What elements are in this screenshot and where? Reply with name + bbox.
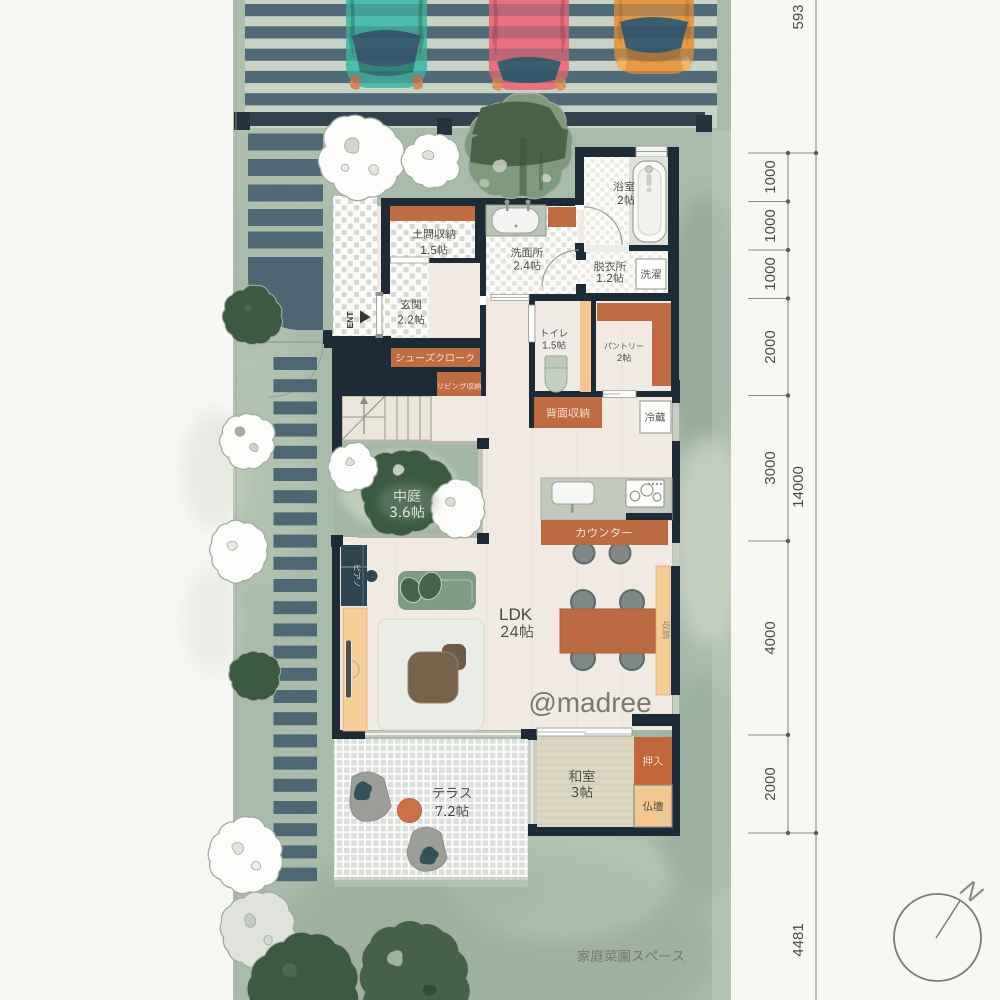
svg-text:1000: 1000 bbox=[762, 257, 779, 290]
svg-text:593: 593 bbox=[790, 4, 807, 29]
svg-text:2000: 2000 bbox=[762, 767, 779, 800]
svg-text:4481: 4481 bbox=[790, 923, 807, 956]
svg-text:@madree: @madree bbox=[528, 687, 651, 718]
svg-text:1000: 1000 bbox=[762, 160, 779, 193]
svg-text:14000: 14000 bbox=[790, 466, 807, 508]
svg-text:4000: 4000 bbox=[762, 621, 779, 654]
svg-text:2000: 2000 bbox=[762, 330, 779, 363]
svg-text:1000: 1000 bbox=[762, 209, 779, 242]
svg-text:ENT: ENT bbox=[345, 311, 355, 329]
svg-text:3000: 3000 bbox=[762, 451, 779, 484]
svg-text:LDK: LDK bbox=[499, 605, 533, 624]
